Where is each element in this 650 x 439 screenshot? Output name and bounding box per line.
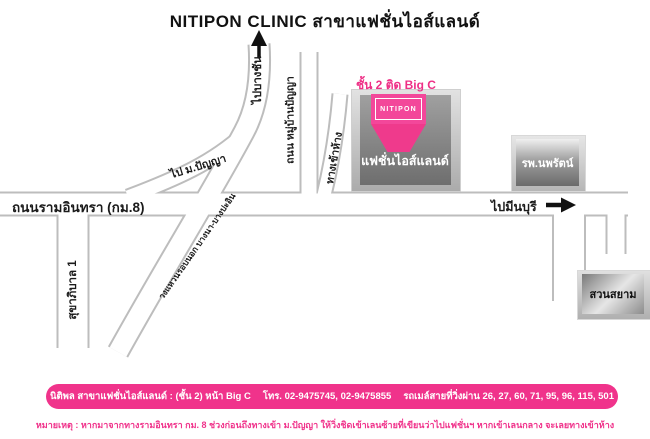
hospital-label: รพ.นพรัตน์ <box>522 154 574 172</box>
page-title: NITIPON CLINIC สาขาแฟชั่นไอส์แลนด์ <box>0 8 650 35</box>
banner-bus-lines: รถเมล์สายที่วิ่งผ่าน 26, 27, 60, 71, 95,… <box>403 389 614 404</box>
siam-park-box: สวนสยาม <box>582 274 644 314</box>
footer-note: หมายเหตุ : หากมาจากทางรามอินทรา กม. 8 ช่… <box>0 418 650 432</box>
road-label-ram-inthra: ถนนรามอินทรา (กม.8) <box>12 196 145 218</box>
info-banner: นิติพล สาขาแฟชั่นไอส์แลนด์ : (ชั้น 2) หน… <box>46 384 618 409</box>
hospital-box: รพ.นพรัตน์ <box>516 139 579 186</box>
siam-park-label: สวนสยาม <box>590 285 637 303</box>
road-label-to-bangchan: ไปบางชัน <box>249 56 267 104</box>
road-label-to-minburi: ไปมีนบุรี <box>491 197 537 217</box>
banner-branch-info: นิติพล สาขาแฟชั่นไอส์แลนด์ : (ชั้น 2) หน… <box>50 389 251 404</box>
mall-name-label: แฟชั่นไอส์แลนด์ <box>352 151 458 171</box>
road-label-sukhaphiban: สุขาภิบาล 1 <box>64 260 82 319</box>
banner-phone: โทร. 02-9475745, 02-9475855 <box>263 389 391 404</box>
map-page: NITIPON CLINIC สาขาแฟชั่นไอส์แลนด์ NITIP… <box>0 0 650 439</box>
clinic-logo-text: NITIPON <box>380 106 417 113</box>
clinic-logo-box: NITIPON <box>371 94 426 124</box>
road-map-canvas <box>0 0 650 439</box>
clinic-logo-border: NITIPON <box>375 98 422 120</box>
floor-note-label: ชั้น 2 ติด Big C <box>356 76 436 95</box>
road-label-muban-panya: ถนน หมู่บ้านปัญญา <box>282 76 299 164</box>
